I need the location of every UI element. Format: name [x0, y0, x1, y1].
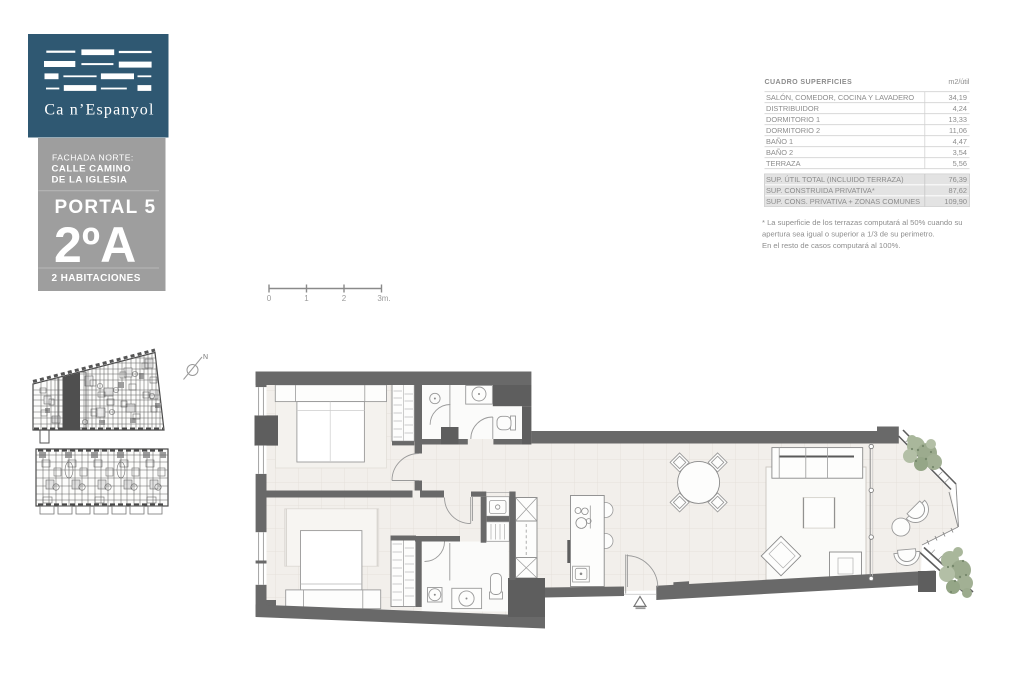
svg-text:3m.: 3m. [377, 294, 390, 303]
svg-text:m2/útil: m2/útil [948, 77, 970, 86]
svg-text:1: 1 [304, 294, 309, 303]
svg-text:DISTRIBUIDOR: DISTRIBUIDOR [766, 104, 819, 113]
svg-text:DORMITORIO 1: DORMITORIO 1 [766, 115, 820, 124]
svg-text:87,62: 87,62 [949, 186, 968, 195]
svg-text:2ºA: 2ºA [54, 217, 136, 273]
svg-text:11,06: 11,06 [949, 126, 967, 135]
svg-text:PORTAL 5: PORTAL 5 [55, 197, 157, 218]
svg-text:N: N [203, 354, 208, 361]
svg-text:2: 2 [342, 294, 347, 303]
svg-text:DORMITORIO 2: DORMITORIO 2 [766, 126, 820, 135]
svg-text:3,54: 3,54 [953, 148, 967, 157]
svg-text:CUADRO SUPERFICIES: CUADRO SUPERFICIES [765, 78, 853, 86]
svg-text:34,19: 34,19 [949, 93, 968, 102]
svg-text:DE LA IGLESIA: DE LA IGLESIA [52, 175, 128, 186]
svg-text:4,47: 4,47 [953, 137, 967, 146]
svg-text:apertura sea igual o superior: apertura sea igual o superior a 1/3 de s… [762, 230, 935, 239]
svg-text:4,24: 4,24 [953, 104, 967, 113]
svg-text:13,33: 13,33 [949, 115, 968, 124]
svg-text:109,90: 109,90 [944, 197, 967, 206]
svg-text:76,39: 76,39 [949, 175, 968, 184]
svg-text:FACHADA NORTE:: FACHADA NORTE: [52, 152, 134, 162]
svg-text:SUP. CONS. PRIVATIVA + ZONAS: SUP. CONS. PRIVATIVA + ZONAS COMUNES [766, 197, 920, 206]
svg-text:5,56: 5,56 [953, 159, 967, 168]
svg-text:BAÑO 1: BAÑO 1 [766, 137, 793, 146]
svg-text:CALLE CAMINO: CALLE CAMINO [52, 164, 132, 175]
svg-text:SUP. ÚTIL TOTAL (INCLUIDO TERR: SUP. ÚTIL TOTAL (INCLUIDO TERRAZA) [766, 175, 904, 184]
svg-text:BAÑO 2: BAÑO 2 [766, 148, 793, 157]
svg-text:SALÓN, COMEDOR, COCINA Y LAVAD: SALÓN, COMEDOR, COCINA Y LAVADERO [766, 93, 914, 102]
svg-text:SUP. CONSTRUIDA PRIVATIVA*: SUP. CONSTRUIDA PRIVATIVA* [766, 186, 875, 195]
svg-text:2 HABITACIONES: 2 HABITACIONES [52, 273, 141, 284]
svg-text:En el resto de casos computará: En el resto de casos computará al 100%. [762, 241, 900, 250]
svg-text:Ca n’Espanyol: Ca n’Espanyol [44, 102, 154, 119]
svg-text:* La superficie de los terraza: * La superficie de los terrazas computar… [762, 218, 963, 227]
svg-text:0: 0 [267, 294, 272, 303]
svg-text:TERRAZA: TERRAZA [766, 159, 801, 168]
